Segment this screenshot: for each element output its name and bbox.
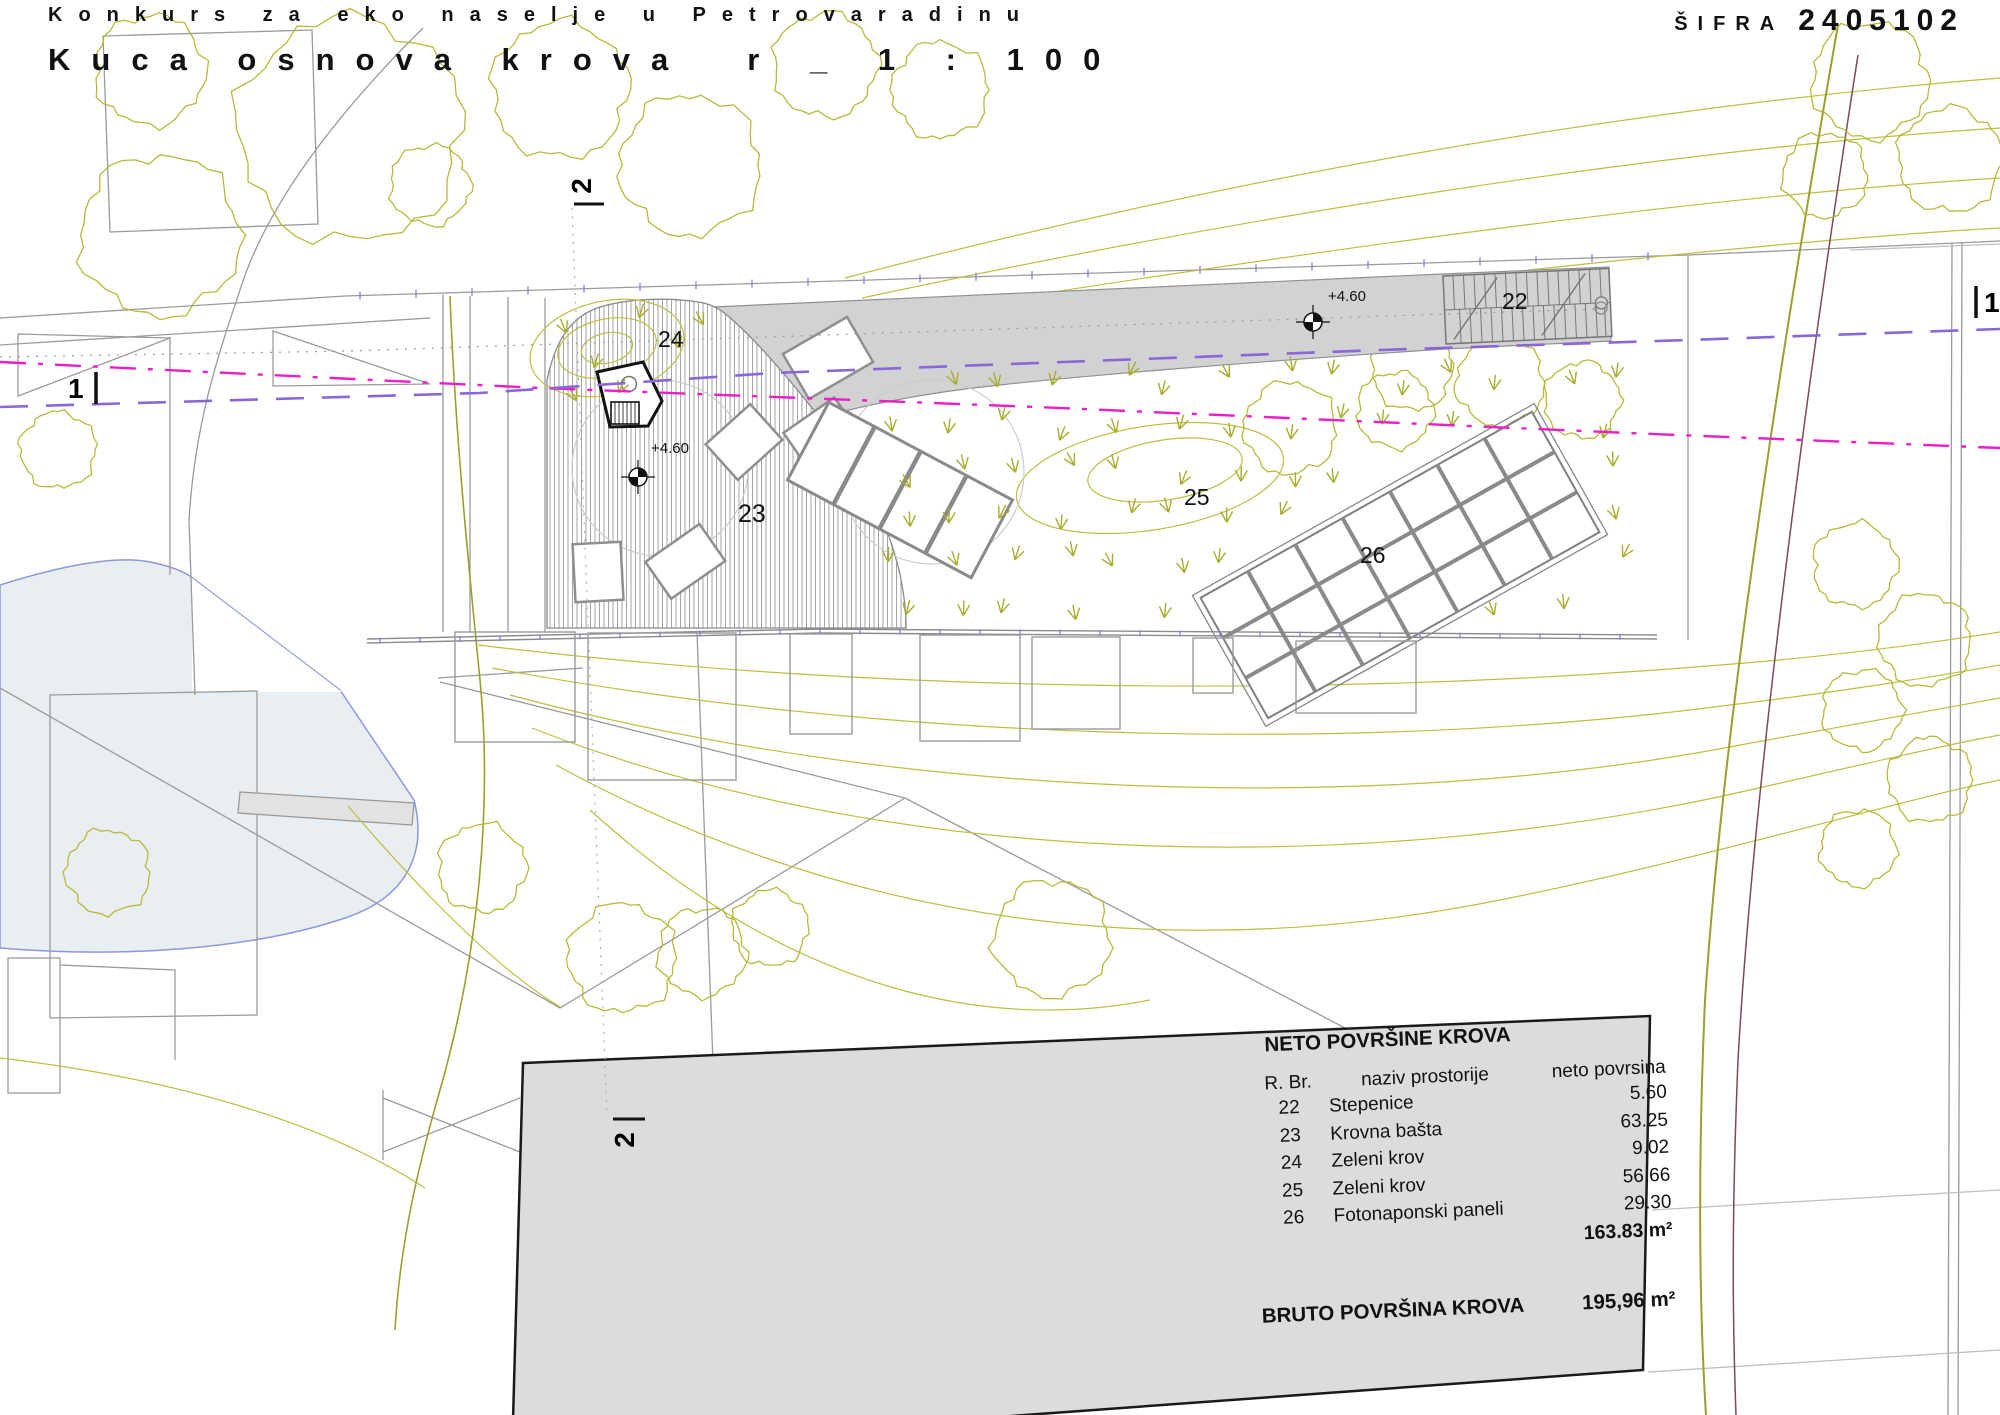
pond [0,560,418,952]
area-label-25: 25 [1184,484,1210,511]
site-plan-drawing: 1 1 2 2 [0,0,2000,1415]
roof-hatch-ladder [611,402,639,424]
section-1-label-right: 1 [1984,287,2000,318]
level-marker-label-band: +4.60 [1328,288,1366,305]
area-label-24: 24 [658,326,684,353]
row-number: 24 [1255,1148,1328,1178]
sheet-code: ŠIFRA 2405102 [1674,4,1964,38]
sheet-title-competition: Konkurs za eko naselje u Petrovaradinu [48,4,1035,27]
section-marker-1-left: 1 [68,372,96,404]
sheet-title-drawing: Kuca osnova krovar _ 1 : 100 [48,42,1121,78]
row-number: 25 [1256,1175,1329,1205]
section-marker-2-top: 2 [566,178,604,204]
drawing-name: Kuca osnova krova [48,42,689,77]
row-number: 26 [1257,1203,1330,1233]
area-label-23: 23 [738,500,766,529]
code-value: 2405102 [1798,4,1964,38]
level-marker-label-23: +4.60 [651,440,689,457]
section-2-label-top: 2 [566,178,597,194]
terrain-contours [0,78,2000,1188]
area-label-22: 22 [1502,288,1528,315]
col-header-number: R. Br. [1252,1071,1325,1096]
building-lower-edge [367,629,1657,643]
section-1-label: 1 [68,373,84,404]
drawing-scale: r _ 1 : 100 [747,42,1121,77]
area-label-26: 26 [1360,542,1386,569]
code-label: ŠIFRA [1674,13,1784,36]
section-marker-1-right: 1 [1976,286,2000,318]
row-number: 23 [1254,1120,1327,1150]
row-number: 22 [1253,1093,1326,1123]
section-2-label-bottom: 2 [609,1132,640,1148]
roof-areas-table: NETO POVRŠINE KROVA R. Br. naziv prostor… [1250,1017,1676,1329]
roof-plan-sheet: 1 1 2 2 Konkurs za eko naselje u Petrova… [0,0,2000,1415]
